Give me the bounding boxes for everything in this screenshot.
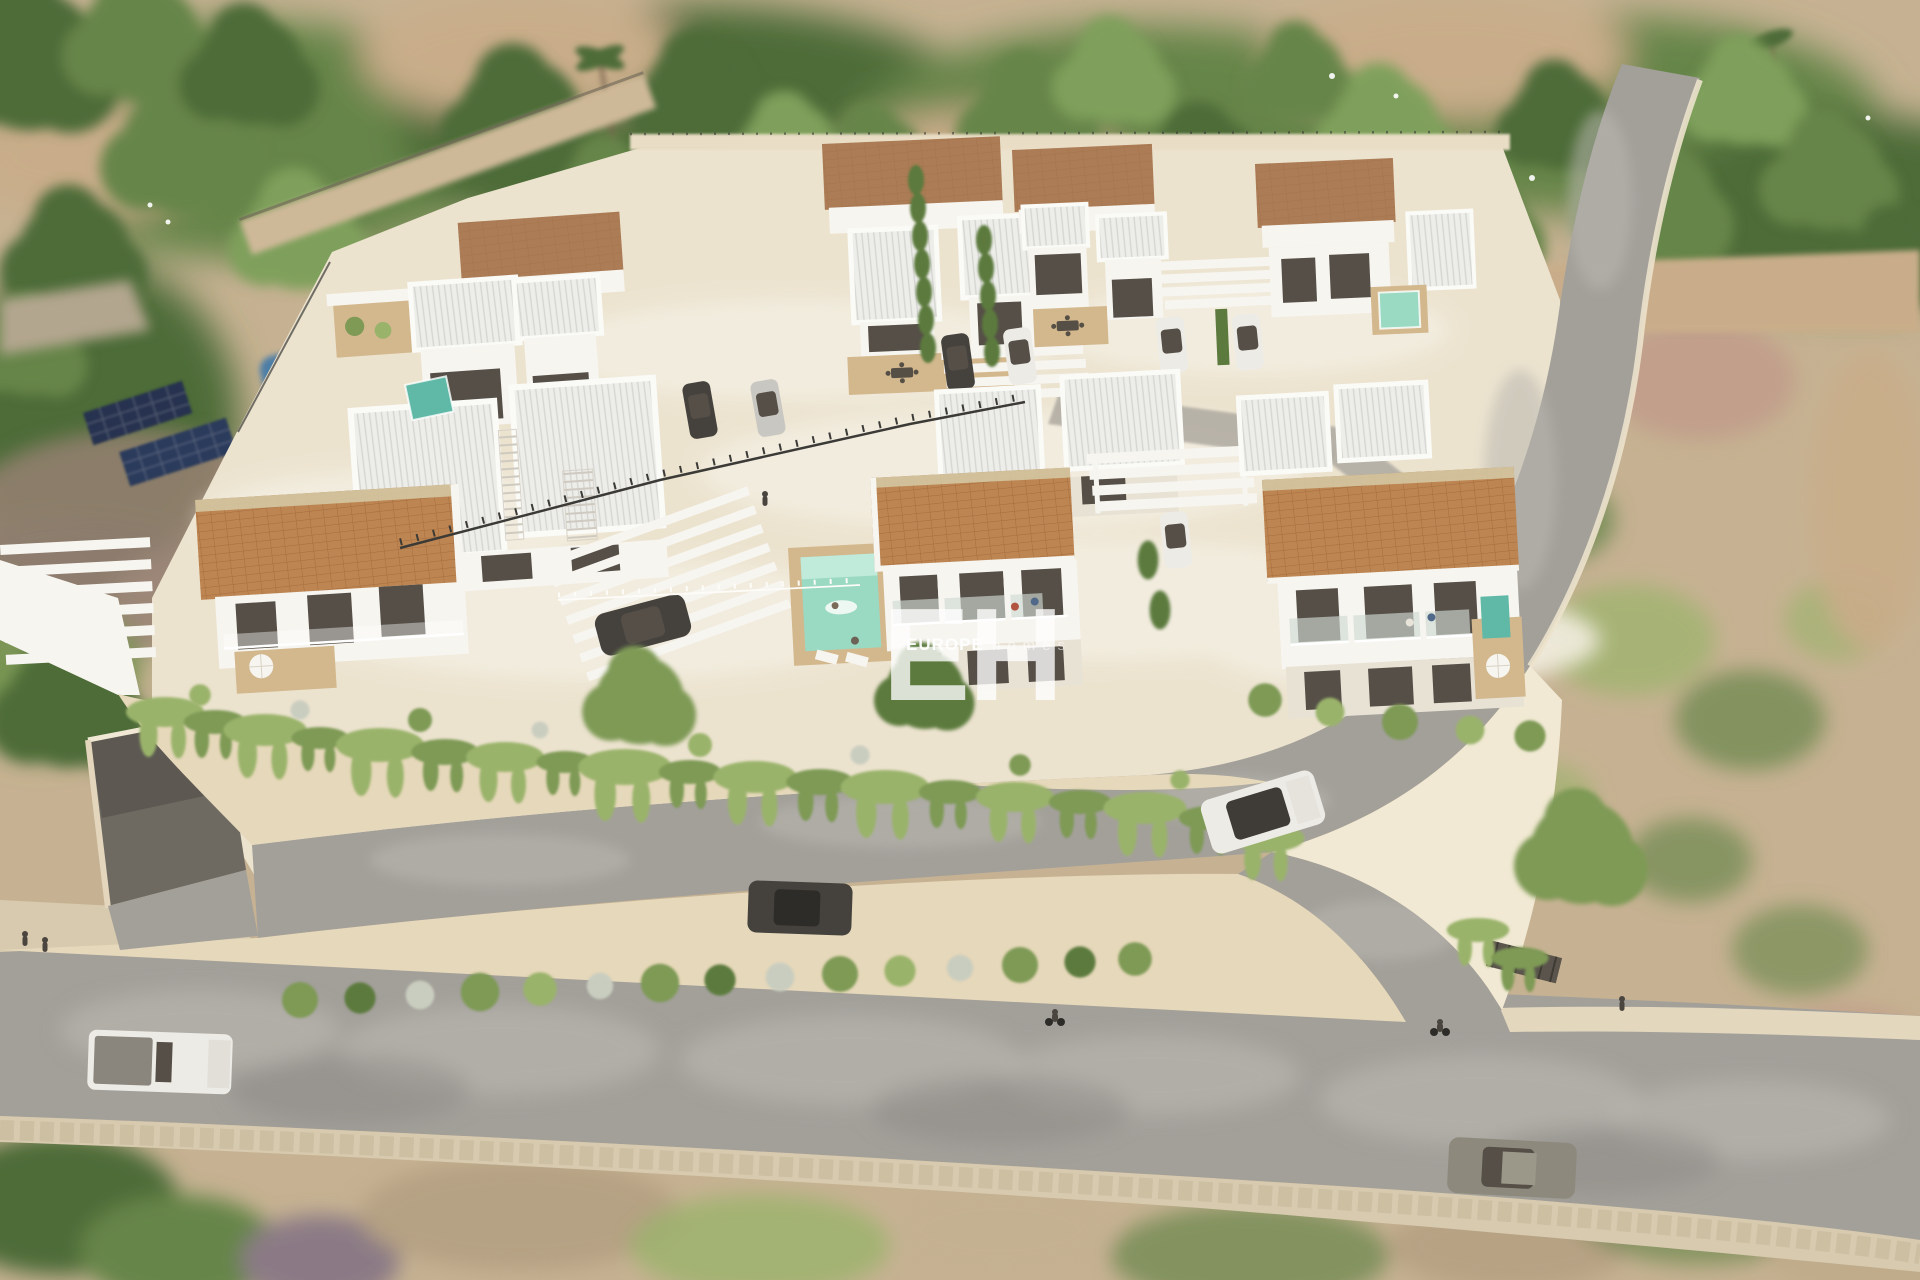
small-pool-left (405, 376, 454, 420)
watermark-brand-secondary: homes (992, 637, 1072, 654)
parked-car-white (1159, 511, 1193, 570)
parked-car-white (1155, 316, 1189, 375)
watermark: EH EUROPE homes (882, 581, 1072, 728)
white-pickup-truck (87, 1030, 233, 1095)
dark-car (747, 880, 853, 936)
parked-car-white (1231, 313, 1265, 372)
gray-car (1447, 1137, 1578, 1200)
watermark-brand: EUROPE (906, 635, 984, 654)
villa-front-right (1262, 467, 1526, 720)
aerial-render: EH EUROPE homes (0, 0, 1920, 1280)
watermark-monogram: EH (882, 581, 1061, 728)
render-viewport: EH EUROPE homes (0, 0, 1920, 1280)
